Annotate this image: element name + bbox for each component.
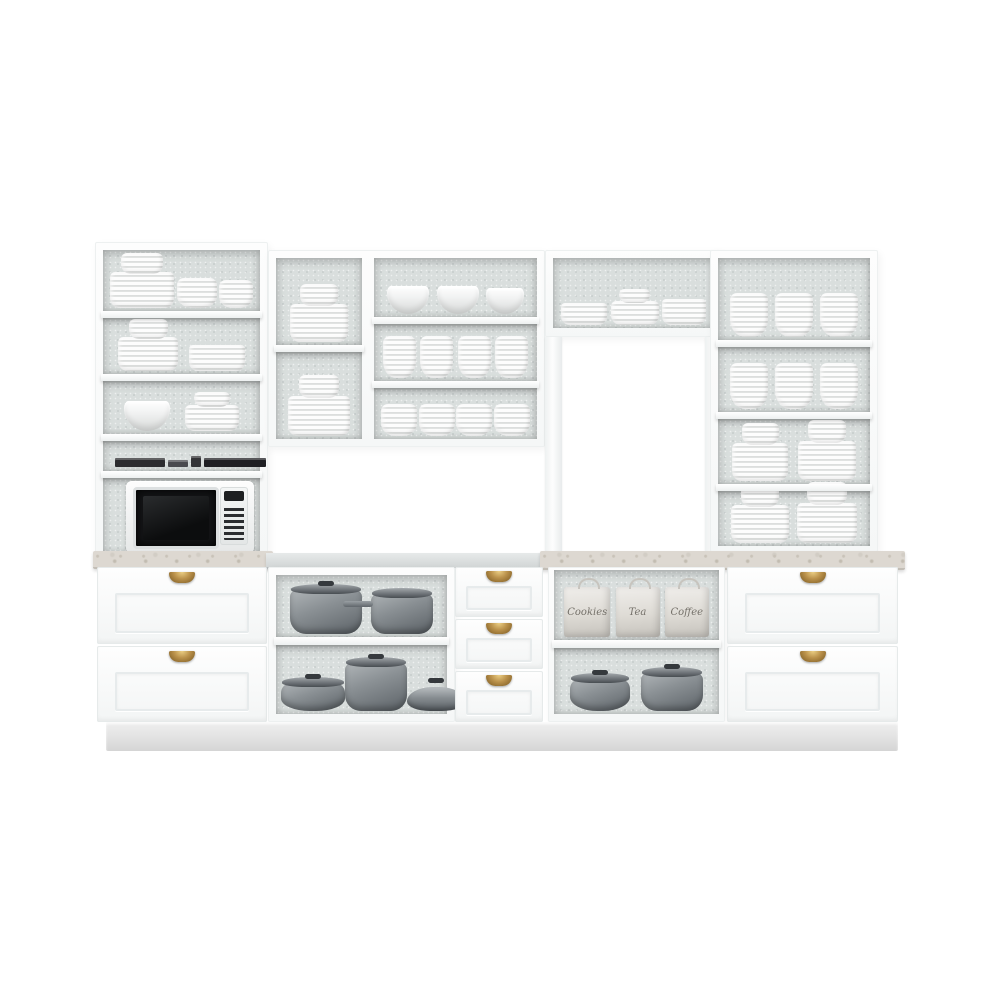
canister-label: Cookies (567, 606, 607, 618)
shelf-board (716, 340, 872, 347)
kitchen-cabinet-product-photo: CookiesTeaCoffee (0, 0, 1000, 1000)
upper-middle-right-bottom (374, 388, 537, 439)
upper-left-shelf-1 (103, 250, 260, 311)
combo (798, 441, 856, 481)
canister-tea: Tea (616, 587, 660, 637)
shelf-board (716, 412, 872, 419)
shelf-board (101, 471, 262, 478)
combo (797, 503, 857, 543)
bowl-stack (219, 280, 253, 308)
plate-stack (662, 299, 706, 325)
bowl (124, 401, 170, 431)
drawer-handle (486, 623, 512, 634)
plinth-base (106, 722, 898, 751)
drawer-handle (800, 651, 826, 662)
bowl-stack (177, 278, 217, 308)
bowl-stack (820, 363, 858, 409)
shelf-board (372, 317, 539, 324)
bowl-stack (458, 336, 491, 378)
upper-right-shelf-3 (718, 419, 870, 484)
base-right-drawer-2 (727, 646, 898, 722)
book (191, 456, 201, 467)
bridge-shelf (553, 258, 714, 328)
base-left-drawer-2 (97, 646, 267, 722)
base-right-open-cabinet: CookiesTeaCoffee (548, 567, 725, 722)
shelf-board (552, 640, 721, 648)
bowl-stack (383, 336, 416, 378)
drawer-panel (115, 672, 249, 711)
upper-middle-cabinet (268, 250, 545, 447)
bowl-stack (730, 363, 768, 409)
shelf-board (372, 381, 539, 388)
drawer-panel (466, 638, 532, 662)
upper-left-shelf-2 (103, 318, 260, 374)
bowl-stack (775, 293, 813, 337)
plate-stack (561, 303, 607, 325)
bowl-stack (381, 404, 417, 436)
upper-middle-left-bottom (276, 352, 362, 439)
bowl-stack (775, 363, 813, 409)
canister-coffee: Coffee (665, 587, 709, 637)
saucepan (371, 594, 433, 634)
book (204, 458, 266, 467)
bowl (387, 286, 429, 314)
upper-left-book-shelf (103, 441, 260, 471)
bowl-stack (820, 293, 858, 337)
microwave-door (133, 487, 219, 549)
book (168, 460, 188, 467)
upper-right-shelf-2 (718, 347, 870, 412)
bridge-cabinet (545, 250, 722, 337)
bowl (486, 288, 524, 314)
combo (185, 405, 239, 431)
shelf-board (274, 637, 449, 645)
niche-left-frame (545, 337, 562, 551)
pots-bottom-shelf (276, 645, 447, 714)
combo (290, 304, 348, 342)
pots-top-shelf (276, 575, 447, 637)
bowl-stack (456, 404, 492, 436)
bowl-stack (730, 293, 768, 337)
microwave-control-panel (220, 487, 248, 545)
combo (110, 272, 174, 308)
lowpan (570, 679, 630, 711)
book (115, 458, 165, 467)
microwave (126, 481, 254, 553)
bowl (437, 286, 479, 314)
pot (345, 663, 407, 711)
upper-right-shelf-4 (718, 491, 870, 546)
lowpan (281, 683, 345, 711)
base-middle-drawer-1 (455, 567, 543, 617)
base-left-drawer-1 (97, 567, 267, 644)
drawer-handle (800, 572, 826, 583)
shelf-board (101, 374, 262, 381)
canister-label: Tea (629, 606, 647, 618)
shelf-board (716, 484, 872, 491)
plate-stack (189, 345, 245, 371)
upper-middle-right-middle (374, 324, 537, 381)
drawer-panel (115, 593, 249, 633)
canister-cookies: Cookies (564, 587, 610, 637)
shelf-board (101, 311, 262, 318)
canister-label: Coffee (670, 606, 703, 618)
combo (118, 337, 178, 371)
upper-middle-right-top (374, 258, 537, 317)
upper-right-tall-cabinet (710, 250, 878, 552)
drawer-handle (169, 572, 195, 583)
combo (732, 443, 788, 481)
combo (611, 301, 659, 325)
base-middle-open-cabinet (268, 567, 455, 722)
microwave-window (143, 496, 209, 540)
upper-left-shelf-3 (103, 381, 260, 434)
upper-right-shelf-1 (718, 258, 870, 340)
canister-shelf: CookiesTeaCoffee (554, 570, 719, 640)
drawer-panel (466, 690, 532, 715)
shelf-board (274, 345, 364, 352)
bowl-stack (494, 404, 530, 436)
base-right-drawer-1 (727, 567, 898, 644)
upper-middle-left-top (276, 258, 362, 345)
drawer-panel (745, 593, 880, 633)
shelf-board (101, 434, 262, 441)
bowl-stack (495, 336, 528, 378)
bowl-stack (420, 336, 453, 378)
bowl-stack (419, 404, 455, 436)
drawer-handle (169, 651, 195, 662)
base-middle-drawer-2 (455, 619, 543, 669)
pot (641, 673, 703, 711)
drawer-panel (466, 586, 532, 610)
combo (731, 505, 789, 543)
drawer-panel (745, 672, 880, 711)
base-middle-drawer-3 (455, 671, 543, 722)
combo (288, 396, 350, 436)
drawer-handle (486, 675, 512, 686)
pot (290, 590, 362, 634)
right-pots-shelf (554, 648, 719, 714)
drawer-handle (486, 571, 512, 582)
